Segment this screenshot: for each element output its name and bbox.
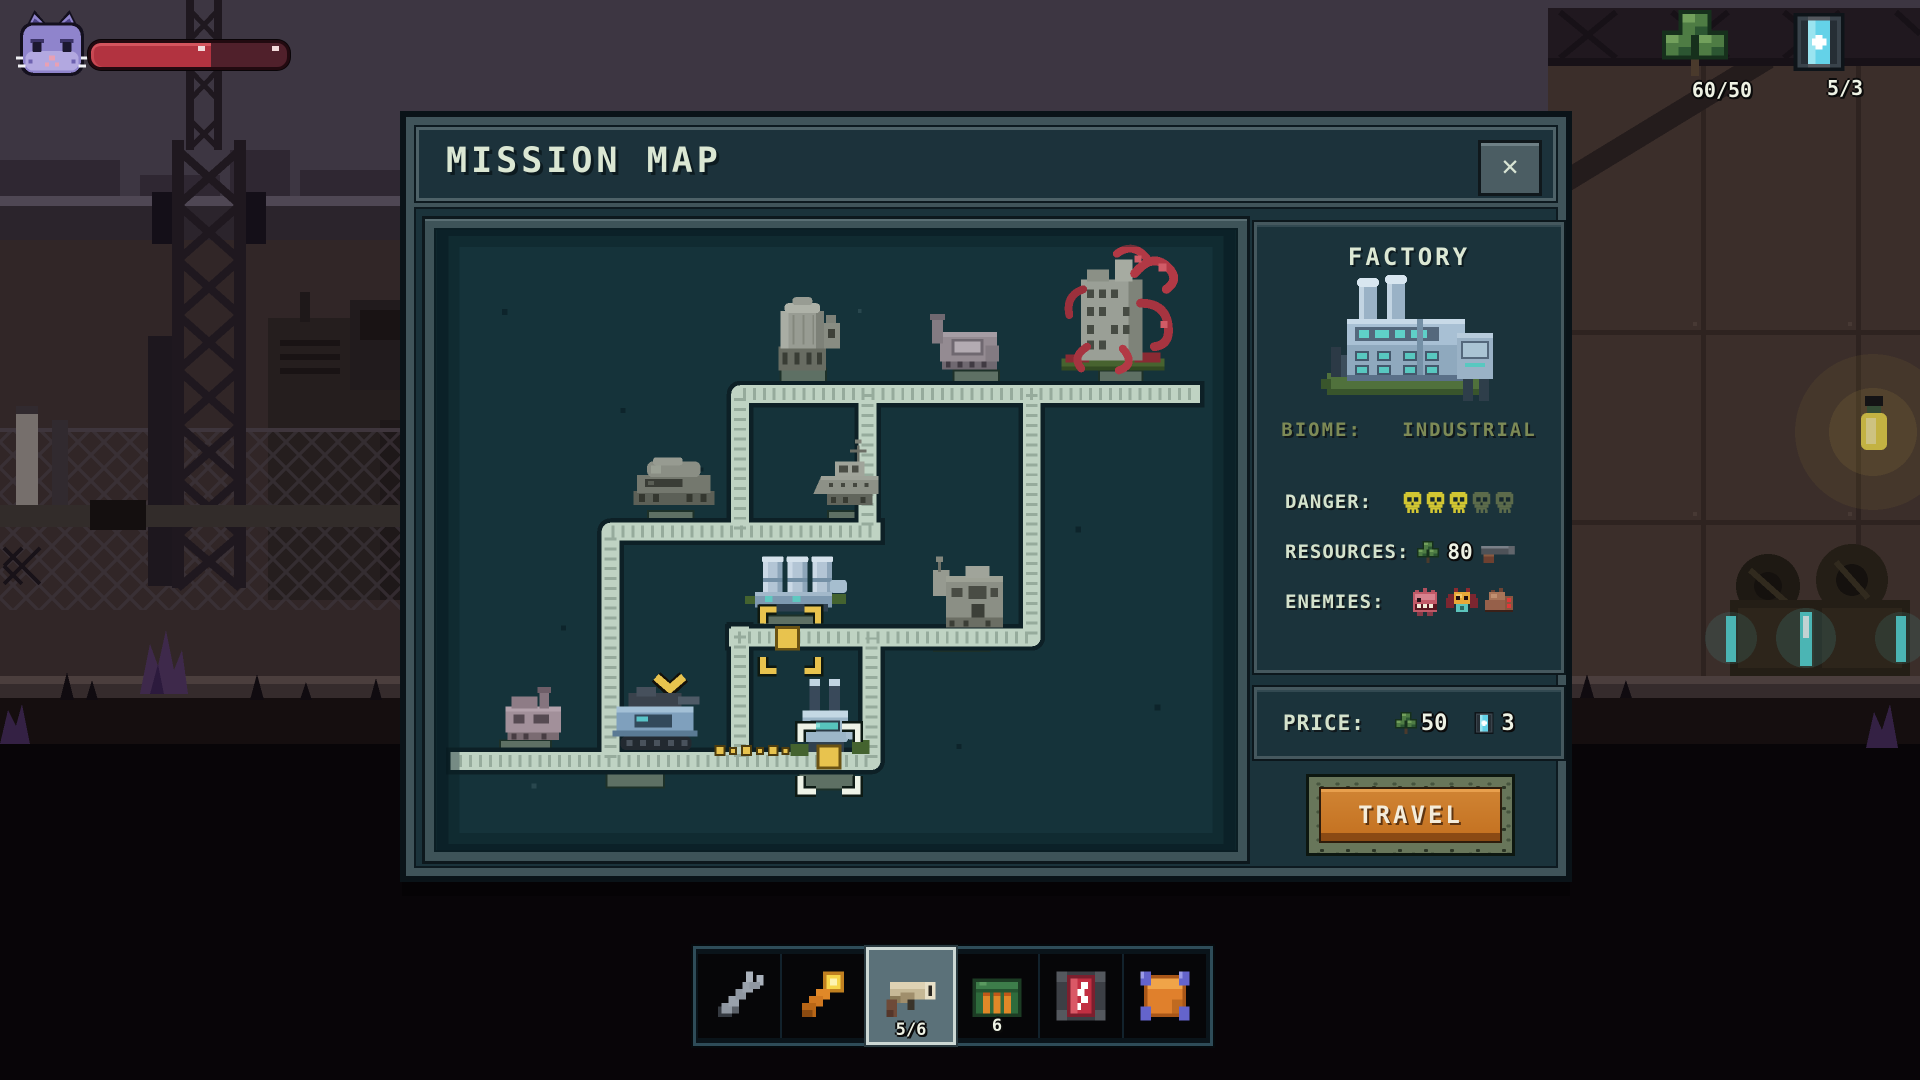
map-node-outpost[interactable] (506, 687, 561, 740)
player-tank[interactable] (613, 677, 700, 750)
portal-cost: 3 (1501, 711, 1514, 736)
travel-button[interactable]: TRAVEL (1319, 787, 1502, 843)
biome-line: BIOME: INDUSTRIAL (1257, 419, 1561, 441)
map-node-plant[interactable] (930, 314, 999, 369)
map-node-factory[interactable] (791, 679, 870, 756)
scrap-cost: 50 (1421, 711, 1448, 736)
health-shine-end (272, 46, 279, 51)
skull-icon (1494, 492, 1515, 513)
resources-row: RESOURCES: 80 (1285, 537, 1515, 567)
enemy-worm-icon (1483, 586, 1515, 618)
close-button[interactable]: ✕ (1478, 140, 1542, 196)
price-panel: PRICE: 50 3 (1254, 687, 1564, 759)
skull-icon (1402, 492, 1423, 513)
revolver-icon (883, 968, 939, 1024)
scrap-icon (1417, 541, 1439, 563)
map-node-power-plant[interactable] (745, 556, 847, 611)
biome-value: INDUSTRIAL (1402, 419, 1536, 441)
hotbar-slot-revolver[interactable]: 5/6 (866, 947, 956, 1045)
flashlight-icon (795, 968, 851, 1024)
biome-label: BIOME: (1281, 419, 1362, 441)
danger-row: DANGER: (1285, 487, 1515, 517)
price-label: PRICE: (1283, 711, 1365, 735)
battery-icon (1053, 968, 1109, 1024)
health-bar (88, 40, 290, 70)
dialog-body: FACTORY (414, 207, 1558, 868)
slot-count: 5/6 (869, 1020, 953, 1040)
skull-icon (1448, 492, 1469, 513)
skull-icon (1425, 492, 1446, 513)
portal-cost-icon (1473, 711, 1495, 735)
skull-icon (1471, 492, 1492, 513)
danger-skulls (1402, 492, 1515, 513)
map-node-bunker-dome[interactable] (633, 457, 714, 504)
slot-count: 6 (956, 1016, 1038, 1036)
health-shine (198, 46, 205, 51)
node-info-panel: FACTORY (1254, 222, 1564, 673)
portal-resource-icon (1790, 10, 1848, 74)
avatar (16, 8, 88, 80)
health-fill (91, 43, 211, 67)
dialog-titlebar: MISSION MAP ✕ (414, 125, 1558, 203)
game-screen: 60/50 5/3 MISSION MAP ✕ (0, 0, 1920, 1080)
enemies-row: ENEMIES: (1285, 587, 1515, 617)
map-panel (422, 216, 1250, 864)
mission-map-dialog: MISSION MAP ✕ (402, 113, 1570, 880)
portal-count: 5/3 (1790, 76, 1900, 100)
hotbar-slot-ammo-box[interactable]: 6 (956, 954, 1040, 1038)
dialog-title: MISSION MAP (446, 141, 722, 181)
scrap-cost-icon (1395, 712, 1417, 734)
hotbar-slot-flashlight[interactable] (782, 954, 866, 1038)
map-node-infested-ruin[interactable] (1061, 249, 1173, 371)
danger-label: DANGER: (1285, 491, 1372, 513)
resource-counter-scrap: 60/50 (1662, 10, 1782, 102)
resource-counter-portal: 5/3 (1790, 10, 1900, 100)
enemy-furball-icon (1409, 586, 1441, 618)
hotbar-slot-wrench[interactable] (698, 954, 782, 1038)
wire-spool-icon (1137, 968, 1193, 1024)
scrap-resource-icon (1662, 10, 1728, 76)
resources-value: 80 (1447, 540, 1472, 564)
hotbar-slot-wire-spool[interactable] (1124, 954, 1206, 1038)
hotbar: 5/6 6 (693, 946, 1213, 1046)
node-title: FACTORY (1257, 243, 1561, 271)
map-node-silo[interactable] (779, 297, 840, 370)
wrench-icon (711, 968, 767, 1024)
resources-label: RESOURCES: (1285, 541, 1409, 563)
travel-button-frame: TRAVEL (1309, 777, 1512, 853)
factory-illustration (1319, 275, 1495, 407)
map-canvas[interactable] (434, 228, 1238, 852)
enemy-bat-icon (1446, 586, 1478, 618)
map-node-warehouse[interactable] (933, 556, 1003, 627)
scrap-count: 60/50 (1662, 78, 1782, 102)
enemies-label: ENEMIES: (1285, 591, 1385, 613)
gun-loot-icon (1481, 542, 1515, 563)
hotbar-slot-battery[interactable] (1040, 954, 1124, 1038)
